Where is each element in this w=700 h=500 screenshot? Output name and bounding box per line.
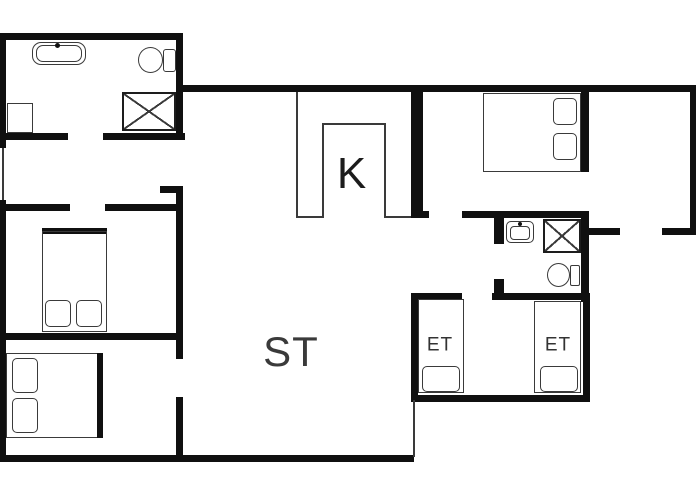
kitchen-wall-foot [411,211,429,218]
hall-wall-upper [176,186,183,359]
bath2-toilet-tank [570,265,580,286]
bath1-shower [122,92,176,131]
room-label-single-bedroom-right: ET [545,336,571,355]
entry-bottom-wall-b [662,228,696,235]
bath2-door-jamb-upper [494,218,504,244]
bed-et-right-pillow [540,366,578,392]
left-wall-window [2,148,4,200]
kitchen-left-line [296,92,298,218]
main-top-wall [176,85,696,92]
bathtub-inner [36,45,82,62]
entry-bottom-wall-a [589,228,620,235]
bed-et-left-pillow [422,366,460,392]
bed-midleft-pillow-1 [45,300,71,327]
st-bottom-wall [0,455,414,462]
et-bottom-wall [411,395,590,402]
bath1-cabinet [7,103,33,133]
room-label-kitchen: K [337,152,367,196]
top-wall-left-block [0,33,183,40]
st-step-line [413,400,415,457]
bath2-toilet-bowl [547,263,570,287]
bath1-bottom-wall-b [103,133,185,140]
counter-bottom-right [384,216,411,218]
counter-inner-right [384,123,386,218]
room-label-living-room: ST [263,331,319,373]
bed-botleft-pillow-2 [12,398,38,433]
bedroom2-top-wall-a [6,204,70,211]
right-outer-wall [690,85,696,235]
counter-bottom-left [296,216,323,218]
hall-wall-lower [176,397,183,457]
bed-topright-pillow-1 [553,98,577,125]
hall-wall-foot [160,186,183,193]
kitchen-right-wall [411,85,423,218]
bed-topright-pillow-2 [553,133,577,160]
bath1-toilet-tank [163,49,176,72]
bedroom-entry-divider-up [581,85,589,172]
floor-plan: KSTETET [0,0,700,500]
bath1-toilet-bowl [138,47,163,73]
bath2-sink-faucet-dot [518,222,522,226]
bed-botleft-footboard [97,353,103,438]
bed-botleft-pillow-1 [12,358,38,393]
bath2-sink-bowl [510,226,530,240]
bath1-bottom-wall-a [0,133,68,140]
bedroom-divider-wall [0,333,177,340]
bath2-shower [543,219,581,253]
et-right-wall [583,293,590,402]
bedroom2-top-wall-b [105,204,180,211]
bedroom-entry-divider-dn [581,211,589,302]
room-label-single-bedroom-left: ET [427,336,453,355]
et-left-wall [411,293,418,402]
bed-midleft-pillow-2 [76,300,102,327]
left-wall-upper [0,33,6,148]
counter-inner-top [322,123,385,125]
counter-inner-left [322,123,324,218]
bath2-bottom-wall [492,293,585,300]
bathtub-faucet-dot [55,43,60,48]
bath2-top-wall [462,211,589,218]
